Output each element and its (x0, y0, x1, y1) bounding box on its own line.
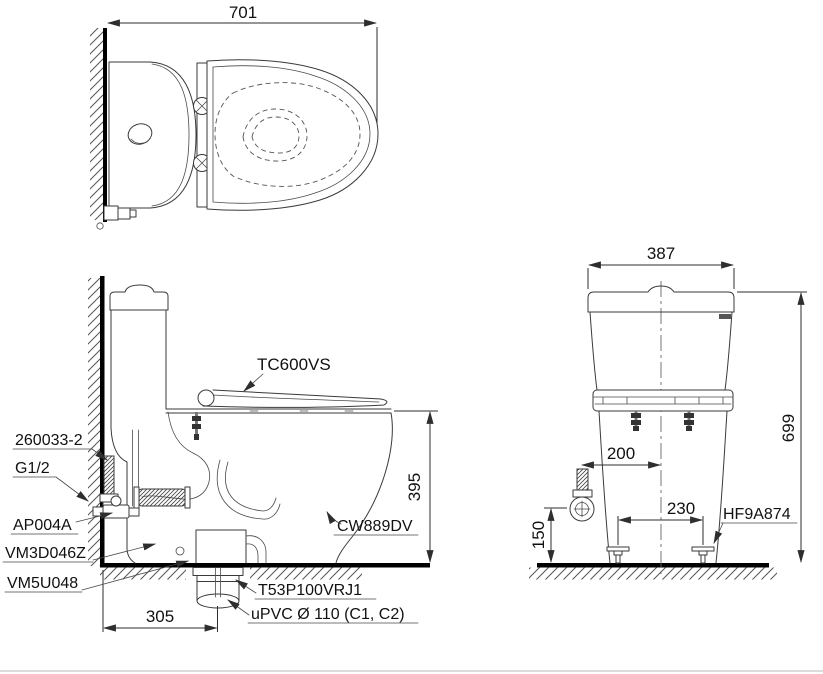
floor-line (100, 563, 430, 568)
label-inlet-valve: VM3D046Z (5, 545, 86, 562)
side-view: 395 305 260033-2 G1/2 AP004A VM3D046Z VM… (3, 276, 438, 632)
dim-200: 200 (582, 444, 660, 465)
floor-bolt-left (607, 547, 629, 563)
seat-bolt-side (192, 412, 201, 440)
dim-label-395: 395 (405, 473, 424, 501)
dim-label-150: 150 (529, 521, 548, 549)
page-edge-line (0, 670, 823, 672)
label-tank-bolt: 260033-2 (15, 432, 83, 449)
front-view: 387 (529, 244, 807, 580)
top-view: 701 (90, 3, 378, 229)
label-seat: TC600VS (257, 355, 331, 374)
stop-valve-body (103, 505, 129, 518)
label-supply-thread: G1/2 (15, 460, 50, 477)
flex-hose (138, 489, 186, 506)
floor-bolt-right (692, 547, 714, 563)
seat-bolt-front (684, 411, 694, 431)
label-stop-valve: AP004A (13, 517, 72, 534)
dim-label-387: 387 (647, 244, 675, 263)
dim-label-701: 701 (229, 3, 257, 22)
tank-plan (109, 62, 196, 208)
brand-logo-badge (719, 314, 731, 319)
seat-plate-front (593, 390, 733, 411)
wall-line (100, 276, 105, 568)
floor-line (537, 563, 769, 568)
floor-hatch (529, 568, 777, 580)
dim-label-305: 305 (146, 607, 174, 626)
label-outlet-gasket: VM5U048 (7, 575, 78, 592)
seat-bolt-front (631, 411, 641, 431)
wall-hatch (88, 278, 100, 566)
flange-label: T53P100VRJ1 (236, 580, 376, 599)
label-bowl: CW889DV (337, 518, 413, 535)
dim-label-200: 200 (607, 444, 635, 463)
drain-pipe-label: uPVC Ø 110 (C1, C2) (228, 600, 418, 623)
label-flange: T53P100VRJ1 (258, 582, 362, 599)
tank-bolt (104, 456, 114, 494)
tank-side (110, 285, 168, 428)
supply-front (570, 469, 594, 521)
dim-150: 150 (529, 508, 567, 562)
technical-drawing-sheet: 701 (0, 0, 823, 674)
seat-label: TC600VS (244, 355, 331, 391)
wall-line (103, 28, 107, 222)
floor-flange (193, 568, 243, 576)
dim-label-699: 699 (779, 414, 798, 442)
wall-hatch (90, 28, 103, 220)
dim-395: 395 (394, 411, 438, 562)
label-drain-pipe: uPVC Ø 110 (C1, C2) (251, 606, 405, 623)
dim-230: 230 (618, 499, 703, 545)
floor-bolt-label: HF9A874 (714, 506, 797, 543)
seat-plan (207, 60, 378, 211)
wall-pipe (93, 507, 103, 516)
dim-label-230: 230 (667, 499, 695, 518)
seat-side (198, 390, 387, 407)
drawing-canvas: 701 (0, 0, 823, 674)
supply-assembly-side (93, 430, 190, 518)
bowl-label: CW889DV (327, 512, 418, 535)
label-floor-bolt: HF9A874 (723, 506, 791, 523)
bowl-side (111, 409, 392, 563)
